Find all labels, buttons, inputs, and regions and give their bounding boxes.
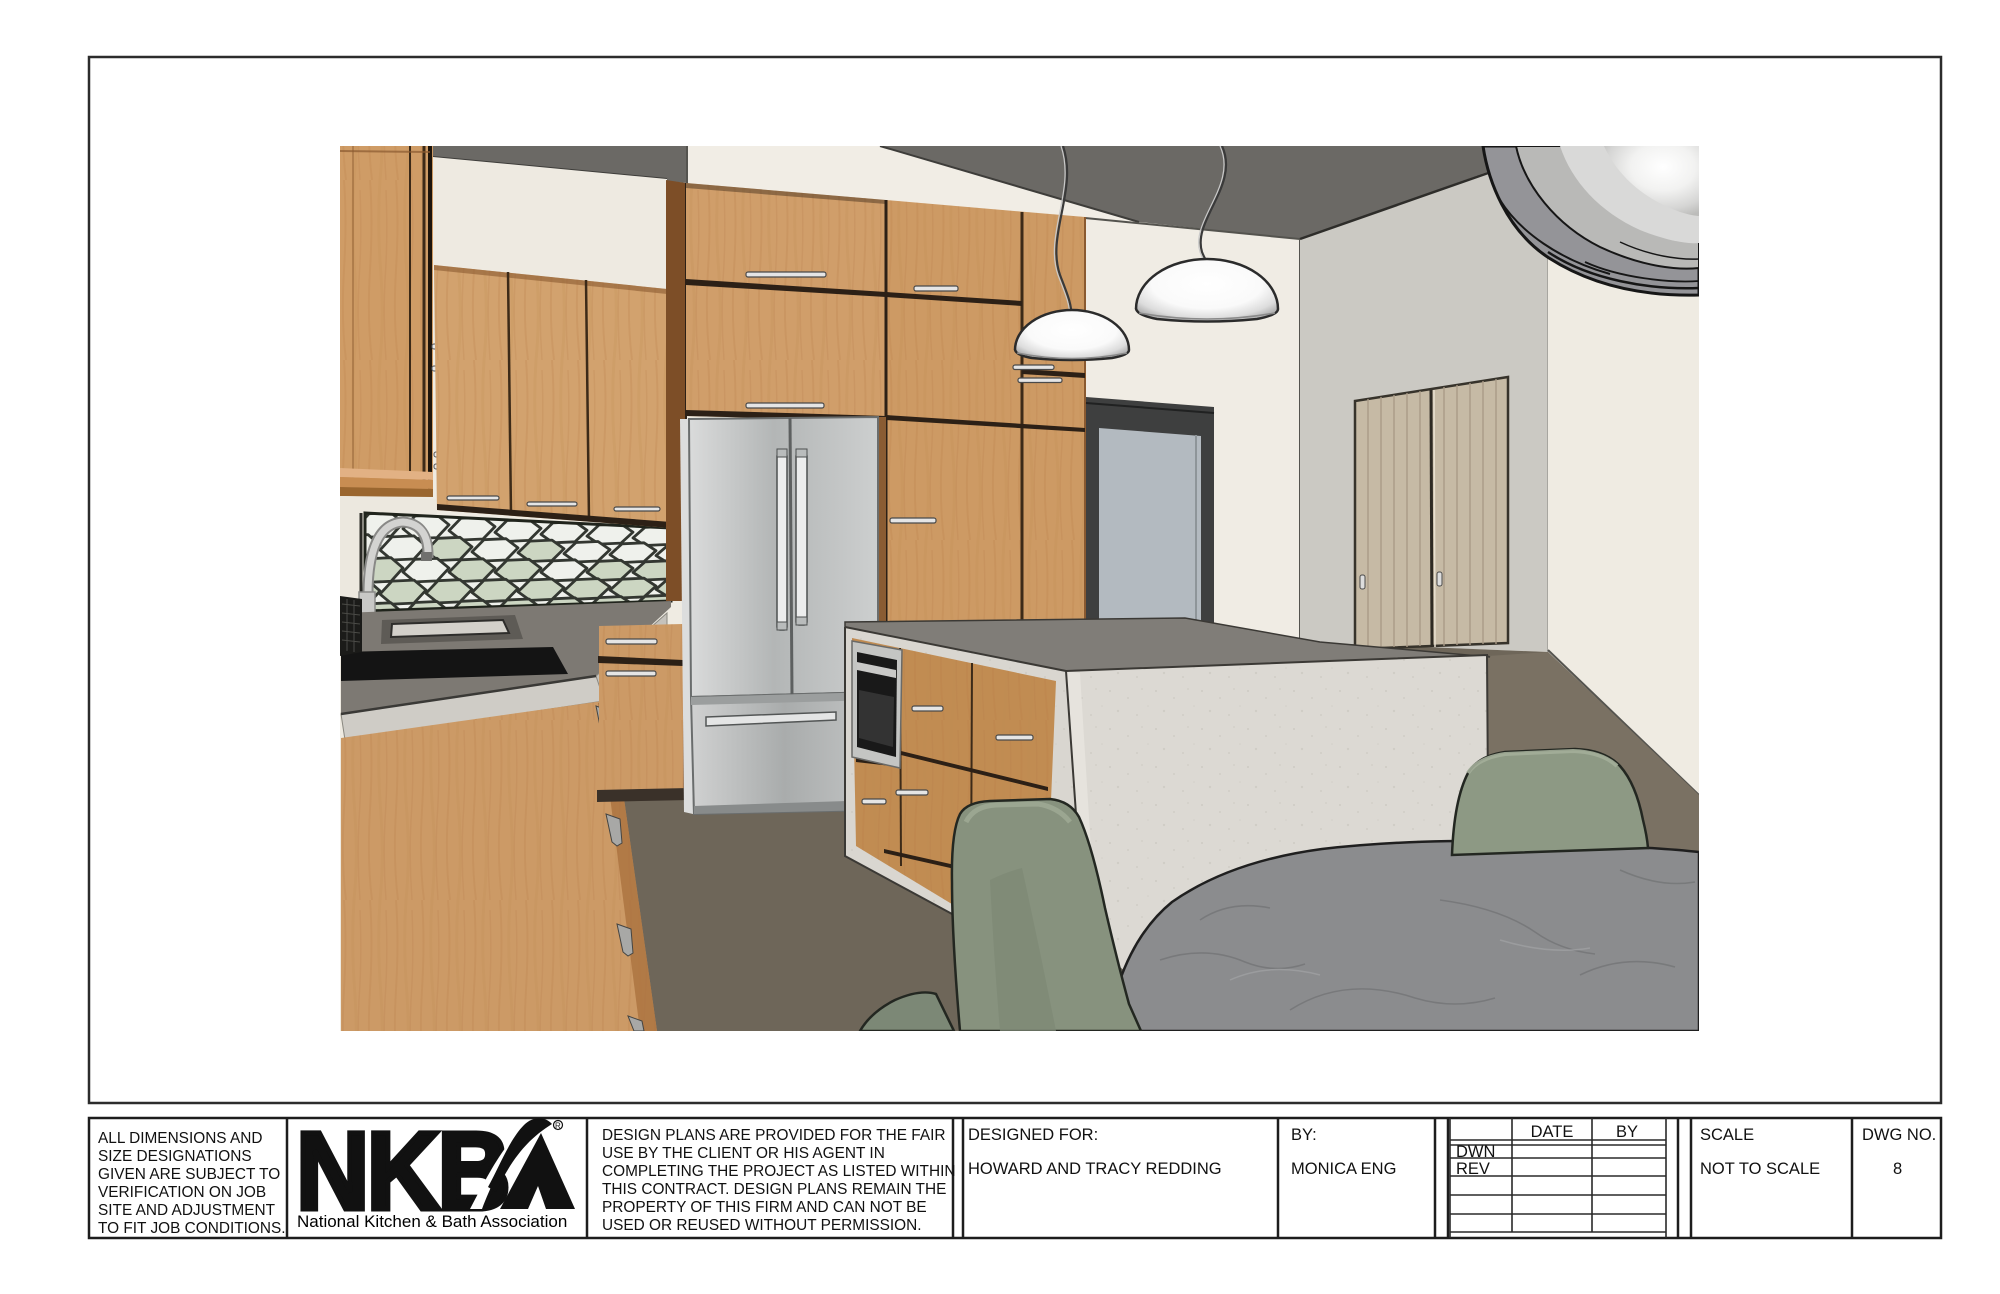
svg-text:GIVEN ARE SUBJECT TO: GIVEN ARE SUBJECT TO bbox=[98, 1166, 280, 1183]
svg-text:COMPLETING THE PROJECT AS LIST: COMPLETING THE PROJECT AS LISTED WITHIN bbox=[602, 1163, 955, 1180]
svg-text:R: R bbox=[555, 1122, 561, 1131]
svg-text:PROPERTY OF THIS FIRM AND CAN: PROPERTY OF THIS FIRM AND CAN NOT BE bbox=[602, 1199, 927, 1216]
svg-text:8: 8 bbox=[1893, 1160, 1902, 1178]
svg-text:MONICA ENG: MONICA ENG bbox=[1291, 1160, 1396, 1178]
svg-text:DATE: DATE bbox=[1531, 1123, 1574, 1141]
svg-text:HOWARD AND TRACY REDDING: HOWARD AND TRACY REDDING bbox=[968, 1160, 1222, 1178]
svg-text:BY: BY bbox=[1616, 1123, 1638, 1141]
svg-text:USED OR REUSED WITHOUT PERMISS: USED OR REUSED WITHOUT PERMISSION. bbox=[602, 1217, 922, 1234]
svg-text:USE BY THE CLIENT OR HIS AGENT: USE BY THE CLIENT OR HIS AGENT IN bbox=[602, 1145, 885, 1162]
svg-text:DWN: DWN bbox=[1456, 1143, 1495, 1161]
svg-text:BY:: BY: bbox=[1291, 1126, 1317, 1144]
svg-text:TO FIT JOB CONDITIONS.: TO FIT JOB CONDITIONS. bbox=[98, 1220, 286, 1237]
svg-text:VERIFICATION ON JOB: VERIFICATION ON JOB bbox=[98, 1184, 266, 1201]
svg-text:SIZE DESIGNATIONS: SIZE DESIGNATIONS bbox=[98, 1148, 252, 1165]
svg-text:SITE AND ADJUSTMENT: SITE AND ADJUSTMENT bbox=[98, 1202, 276, 1219]
svg-text:DESIGNED FOR:: DESIGNED FOR: bbox=[968, 1126, 1098, 1144]
svg-text:National Kitchen & Bath Associ: National Kitchen & Bath Association bbox=[297, 1212, 567, 1231]
svg-text:REV: REV bbox=[1456, 1160, 1490, 1178]
svg-text:THIS CONTRACT. DESIGN PLANS RE: THIS CONTRACT. DESIGN PLANS REMAIN THE bbox=[602, 1181, 946, 1198]
svg-text:DWG NO.: DWG NO. bbox=[1862, 1126, 1936, 1144]
svg-text:NOT TO SCALE: NOT TO SCALE bbox=[1700, 1160, 1820, 1178]
svg-text:DESIGN PLANS ARE PROVIDED FOR: DESIGN PLANS ARE PROVIDED FOR THE FAIR bbox=[602, 1127, 946, 1144]
svg-text:SCALE: SCALE bbox=[1700, 1126, 1754, 1144]
svg-text:ALL DIMENSIONS AND: ALL DIMENSIONS AND bbox=[98, 1130, 263, 1147]
